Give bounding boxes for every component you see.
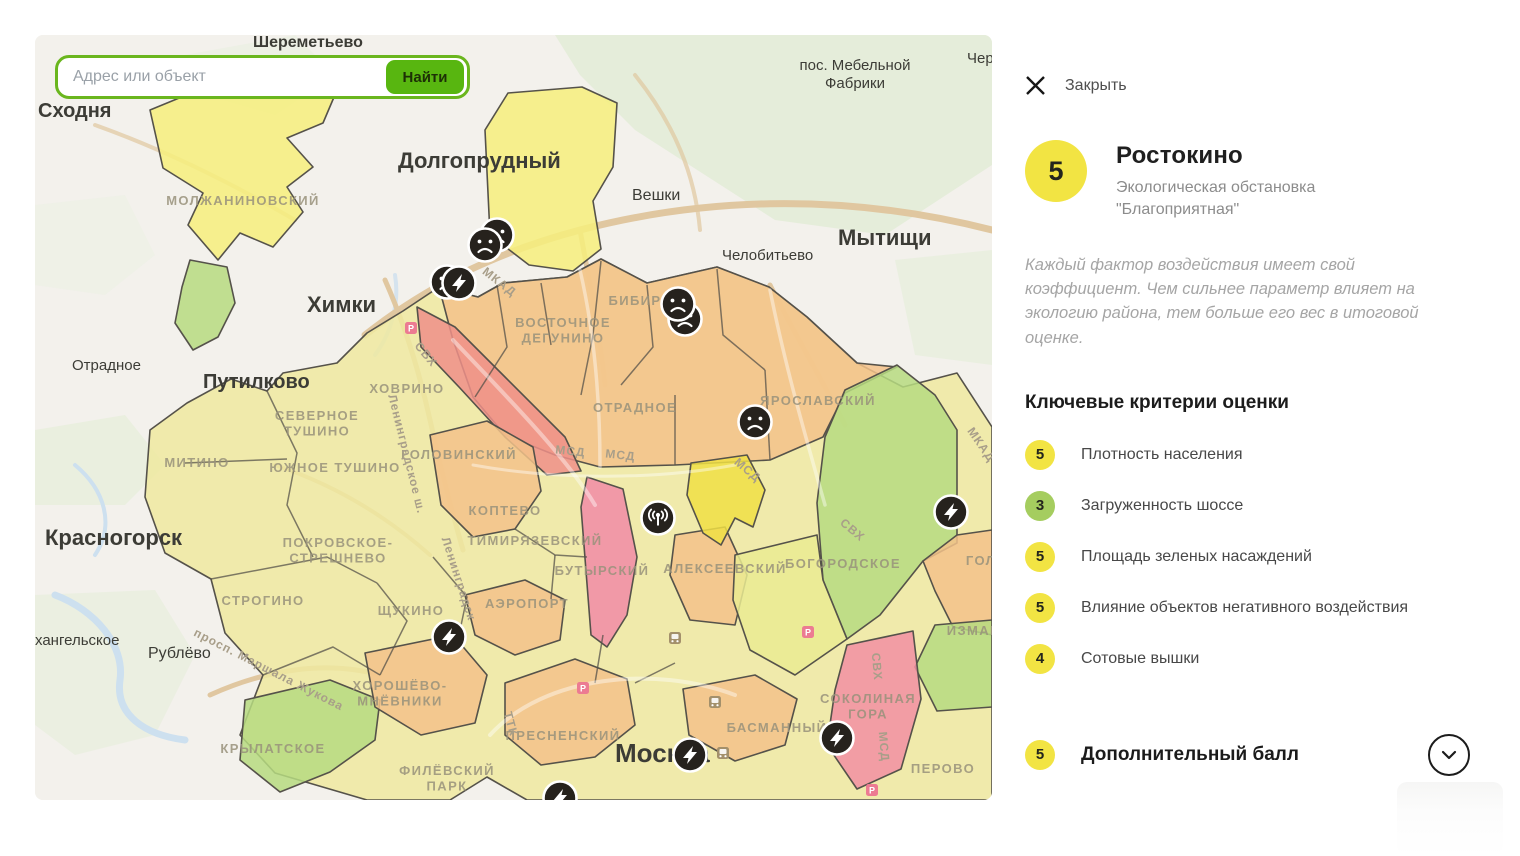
map-district-label: МИТИНО bbox=[164, 455, 229, 470]
lightning-marker-icon[interactable] bbox=[443, 267, 476, 300]
district-subtitle: Экологическая обстановка "Благоприятная" bbox=[1116, 177, 1386, 222]
map-district-label: ХОВРИНО bbox=[369, 381, 444, 396]
map-district-label: БАСМАННЫЙ bbox=[727, 720, 828, 735]
parking-icon bbox=[802, 626, 814, 638]
lightning-marker-icon[interactable] bbox=[935, 496, 968, 529]
map-district-label: БУТЫРСКИЙ bbox=[555, 563, 650, 578]
close-button[interactable]: Закрыть bbox=[1025, 75, 1127, 96]
map-city-label: Рублёво bbox=[148, 645, 211, 662]
lightning-marker-icon[interactable] bbox=[433, 621, 466, 654]
map-district-label: АЭРОПОРТ bbox=[485, 596, 569, 611]
criteria-label: Сотовые вышки bbox=[1081, 650, 1199, 668]
sad-face-marker-icon[interactable] bbox=[662, 288, 695, 321]
criteria-list: 5 Плотность населения 3 Загруженность шо… bbox=[1025, 440, 1470, 674]
map-city-label: хангельское bbox=[35, 632, 119, 649]
map-district-label: КОПТЕВО bbox=[469, 503, 542, 518]
map-city-label: Долгопрудный bbox=[398, 148, 561, 173]
search-button[interactable]: Найти bbox=[386, 60, 464, 94]
train-station-icon bbox=[709, 696, 721, 708]
map-district-label: ПОКРОВСКОЕ-СТРЕШНЕВО bbox=[283, 535, 394, 566]
map-district-label: ОТРАДНОЕ bbox=[593, 400, 677, 415]
criteria-score-badge: 5 bbox=[1025, 440, 1055, 470]
map-district-label: МОЛЖАНИНОВСКИЙ bbox=[166, 193, 320, 208]
map-district-label: ИЗМАЙЛ bbox=[947, 623, 992, 638]
lightning-marker-icon[interactable] bbox=[674, 739, 707, 772]
map-city-label: Химки bbox=[307, 292, 376, 317]
map-city-label: Красногорск bbox=[45, 525, 183, 550]
expand-button[interactable] bbox=[1428, 734, 1470, 776]
details-panel: Закрыть 5 Ростокино Экологическая обстан… bbox=[1025, 75, 1470, 776]
parking-icon bbox=[405, 322, 417, 334]
district-score-badge: 5 bbox=[1025, 140, 1087, 202]
parking-icon bbox=[577, 682, 589, 694]
map-city-label: Сходня bbox=[38, 100, 111, 122]
chevron-down-icon bbox=[1441, 750, 1457, 760]
close-label: Закрыть bbox=[1065, 77, 1127, 95]
map-city-label: Мытищи bbox=[838, 225, 932, 250]
map-city-label: Отрадное bbox=[72, 357, 141, 374]
criteria-label: Влияние объектов негативного воздействия bbox=[1081, 599, 1408, 617]
district-header: 5 Ростокино Экологическая обстановка "Бл… bbox=[1025, 140, 1470, 222]
criteria-score-badge: 5 bbox=[1025, 593, 1055, 623]
map-road-label: СВХ bbox=[869, 652, 885, 681]
extra-score-row: 5 Дополнительный балл bbox=[1025, 734, 1470, 776]
train-station-icon bbox=[717, 747, 729, 759]
map-district-label: ЩУКИНО bbox=[378, 603, 445, 618]
search-input[interactable] bbox=[58, 68, 386, 86]
criteria-row: 4 Сотовые вышки bbox=[1025, 644, 1470, 674]
map-district-label: ГОЛ bbox=[966, 553, 992, 568]
criteria-row: 5 Площадь зеленых насаждений bbox=[1025, 542, 1470, 572]
sad-face-marker-icon[interactable] bbox=[739, 406, 772, 439]
map-district-label: ГОЛОВИНСКИЙ bbox=[401, 447, 517, 462]
map-city-label: Челобитьево bbox=[722, 247, 813, 264]
extra-score-badge: 5 bbox=[1025, 740, 1055, 770]
map-city-label: Путилково bbox=[203, 371, 310, 393]
criteria-label: Площадь зеленых насаждений bbox=[1081, 548, 1312, 566]
map-district-label: КРЫЛАТСКОЕ bbox=[220, 741, 325, 756]
map-road-label: МСД bbox=[876, 731, 893, 762]
district-name: Ростокино bbox=[1116, 142, 1386, 170]
map-district-label: ХОРОШЁВО-МНЁВНИКИ bbox=[353, 678, 448, 709]
criteria-label: Загруженность шоссе bbox=[1081, 497, 1243, 515]
criteria-score-badge: 3 bbox=[1025, 491, 1055, 521]
map-city-label: Вешки bbox=[632, 187, 680, 204]
criteria-heading: Ключевые критерии оценки bbox=[1025, 392, 1470, 414]
map-district-label: БОГОРОДСКОЕ bbox=[785, 556, 901, 571]
map-district-label: ВОСТОЧНОЕДЕГУНИНО bbox=[515, 315, 611, 346]
map-district-label: ЮЖНОЕ ТУШИНО bbox=[269, 460, 400, 475]
criteria-score-badge: 5 bbox=[1025, 542, 1055, 572]
criteria-row: 3 Загруженность шоссе bbox=[1025, 491, 1470, 521]
parking-icon bbox=[866, 784, 878, 796]
methodology-note: Каждый фактор воздействия имеет свой коэ… bbox=[1025, 253, 1470, 350]
map-district-label: ЯРОСЛАВСКИЙ bbox=[760, 393, 876, 408]
map-city-label: Чер bbox=[967, 50, 992, 67]
map-district-label: СТРОГИНО bbox=[221, 593, 304, 608]
map-district-label: АЛЕКСЕЕВСКИЙ bbox=[663, 561, 787, 576]
map-district-label: СЕВЕРНОЕТУШИНО bbox=[275, 408, 359, 439]
map-city-label: Шереметьево bbox=[253, 35, 363, 51]
close-icon bbox=[1025, 75, 1046, 96]
map-district-label: ТИМИРЯЗЕВСКИЙ bbox=[467, 533, 602, 548]
map-district-label: ПРЕСНЕНСКИЙ bbox=[506, 728, 621, 743]
lightning-marker-icon[interactable] bbox=[821, 722, 854, 755]
criteria-label: Плотность населения bbox=[1081, 446, 1243, 464]
map-canvas: Р bbox=[35, 35, 992, 800]
map[interactable]: Р bbox=[35, 35, 992, 800]
next-card-hint bbox=[1397, 782, 1503, 856]
criteria-row: 5 Влияние объектов негативного воздейств… bbox=[1025, 593, 1470, 623]
page: Р bbox=[0, 0, 1520, 856]
criteria-score-badge: 4 bbox=[1025, 644, 1055, 674]
map-search-bar: Найти bbox=[55, 55, 470, 99]
extra-score-label: Дополнительный балл bbox=[1081, 744, 1299, 766]
sad-face-marker-icon[interactable] bbox=[469, 229, 502, 262]
criteria-row: 5 Плотность населения bbox=[1025, 440, 1470, 470]
train-station-icon bbox=[669, 632, 681, 644]
map-district-label: ПЕРОВО bbox=[911, 761, 975, 776]
cell-tower-marker-icon[interactable] bbox=[642, 502, 675, 535]
